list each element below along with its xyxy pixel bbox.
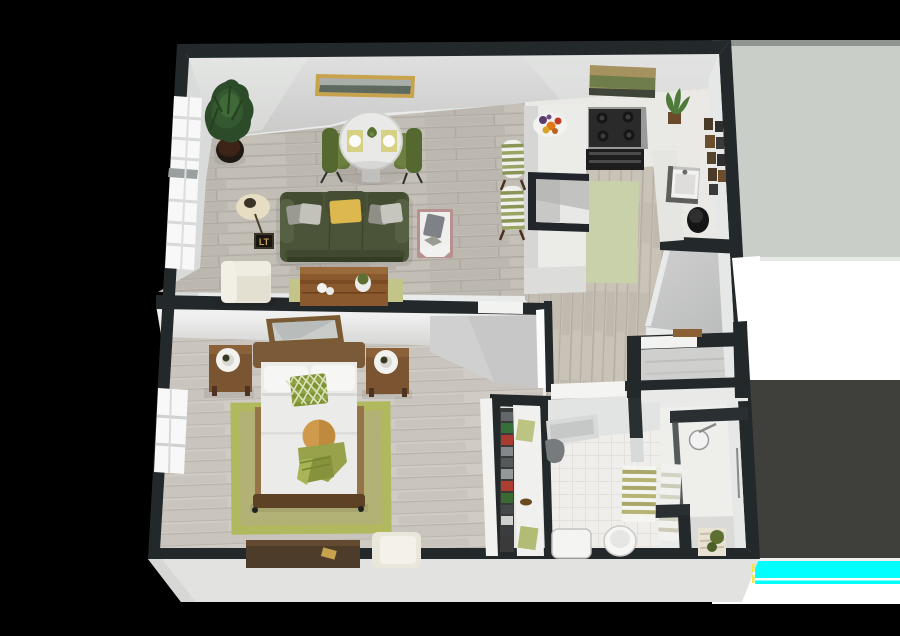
svg-text:LT: LT xyxy=(259,237,270,247)
